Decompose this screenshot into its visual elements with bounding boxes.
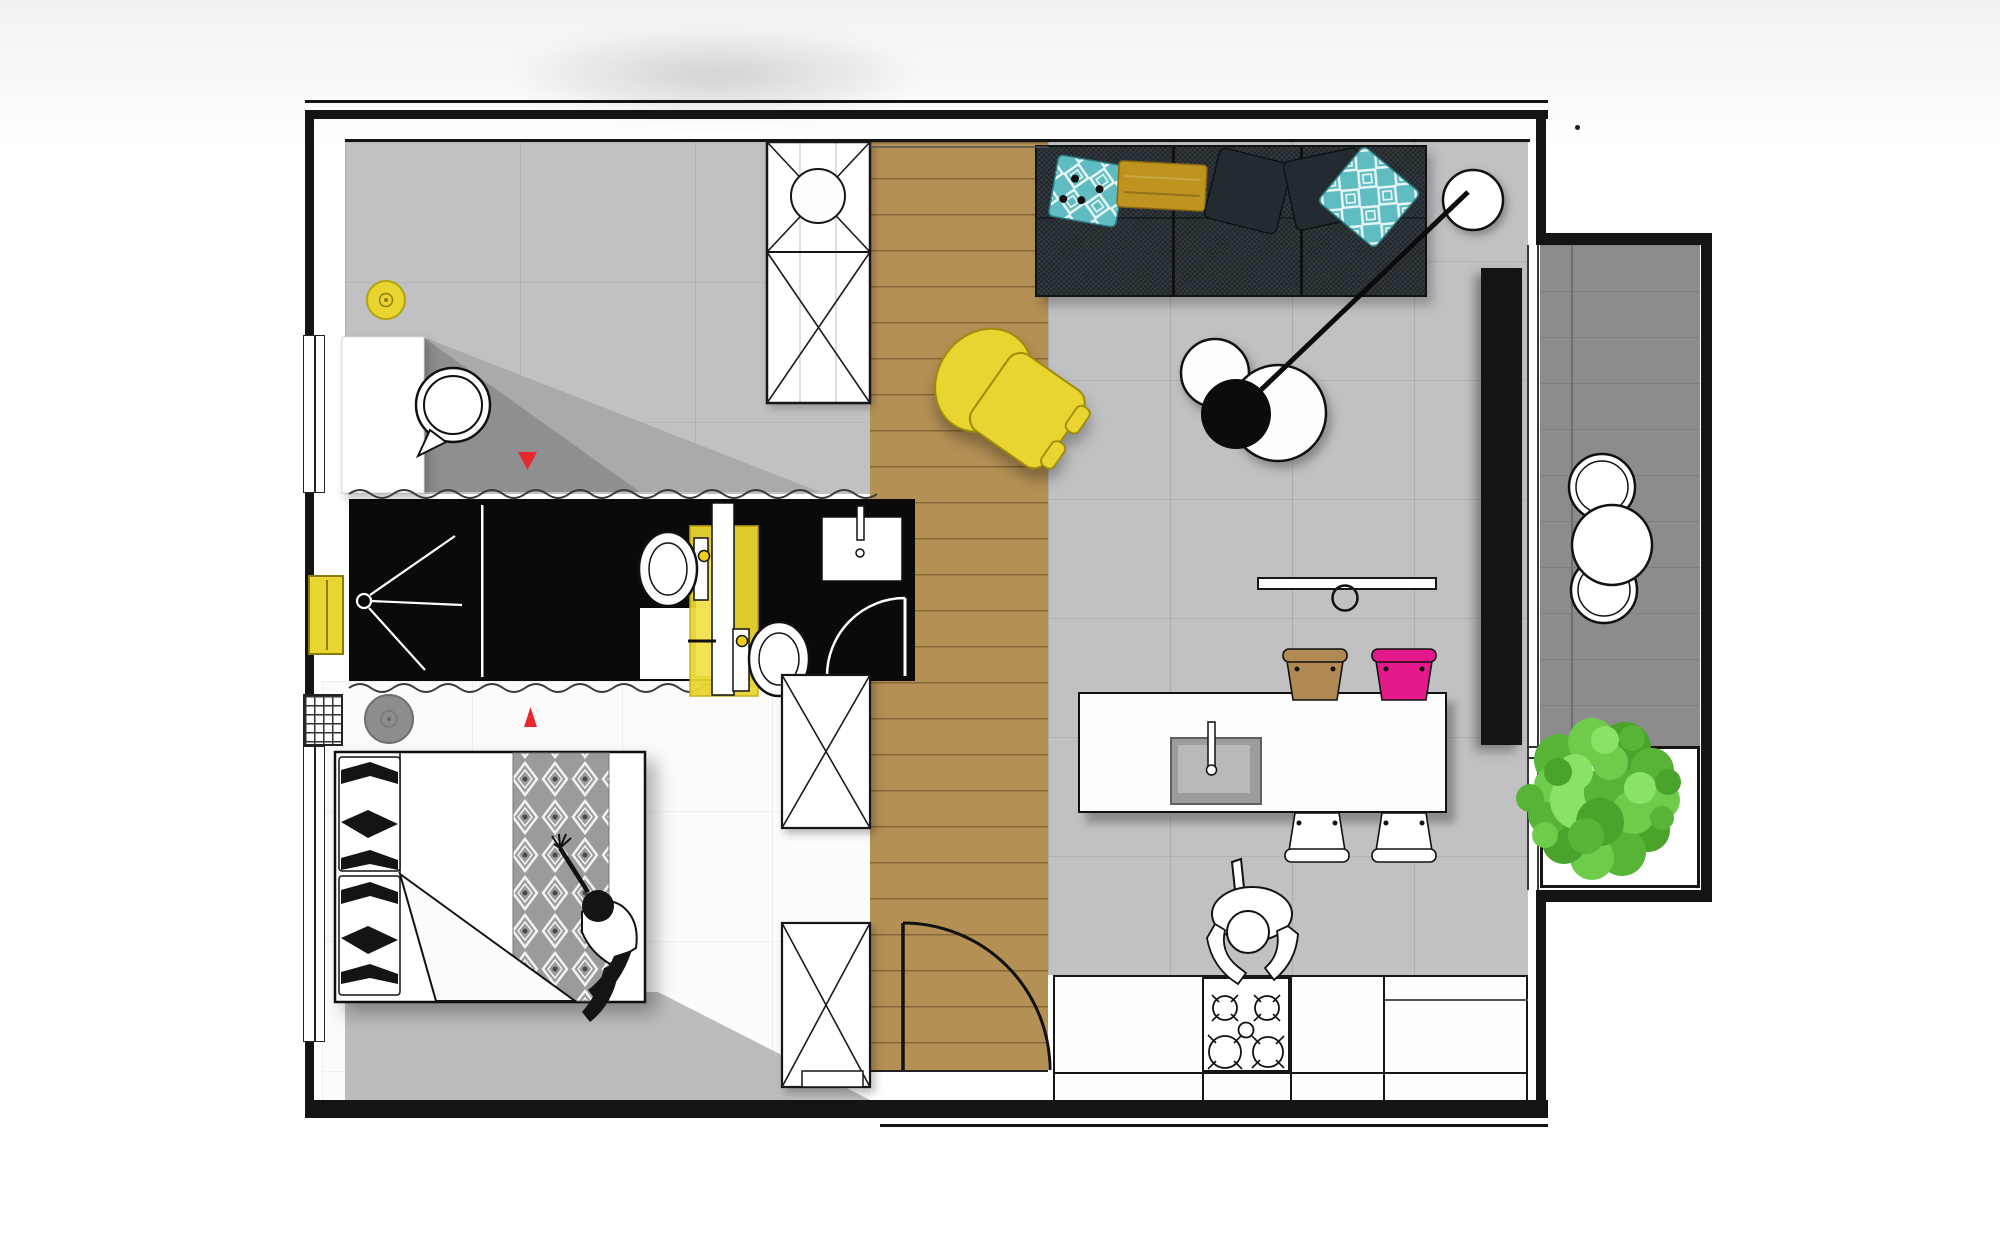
flush-button (737, 636, 748, 647)
head (582, 890, 614, 922)
bed-pillow (339, 757, 400, 871)
toilet-upper (639, 532, 708, 606)
basin-drain (856, 549, 864, 557)
plumbing-column (712, 503, 734, 695)
ponytail (1232, 859, 1244, 890)
pendant-light-icon (1333, 586, 1358, 611)
flush-button (699, 551, 710, 562)
head (1227, 911, 1269, 953)
shower-icon (357, 536, 462, 670)
pillow-teal (1048, 155, 1126, 228)
entrance-door (903, 923, 1050, 1070)
stool-white (1372, 813, 1436, 862)
red-marker-up (524, 707, 537, 727)
kitchen-details (1207, 586, 1437, 1070)
stool-white (1285, 813, 1349, 862)
studio-room (342, 281, 820, 493)
pillow-dark (1203, 147, 1292, 235)
washing-machine-icon (791, 169, 845, 223)
balcony-lounge (1569, 454, 1652, 623)
bathroom-fixtures (357, 503, 905, 696)
basin-faucet-icon (857, 506, 864, 540)
closet-upper (782, 675, 870, 828)
floor-plan (0, 0, 2000, 1256)
person-cooking (1207, 859, 1298, 984)
washbasin (822, 506, 902, 581)
bathroom-door (827, 598, 905, 676)
diamond-runner (513, 753, 609, 1001)
wardrobe-washer-column (767, 142, 870, 403)
stool-tan (1283, 649, 1347, 700)
armchair-yellow (915, 310, 1102, 486)
desk (342, 337, 424, 493)
shower-glass-partition (481, 505, 484, 677)
pillow-mustard (1117, 161, 1207, 212)
side-table (1443, 170, 1503, 230)
bed-pillow (339, 876, 400, 995)
sofa-pillows (1048, 146, 1420, 249)
balcony-tree (1516, 718, 1681, 880)
plan-vector-layer (0, 0, 2000, 1256)
double-bed (335, 752, 645, 1002)
closet-lower (782, 923, 870, 1087)
pouf-yellow (367, 281, 405, 319)
stool-pink (1372, 649, 1436, 700)
hob-burners (1208, 995, 1284, 1069)
round-rug (365, 695, 413, 743)
